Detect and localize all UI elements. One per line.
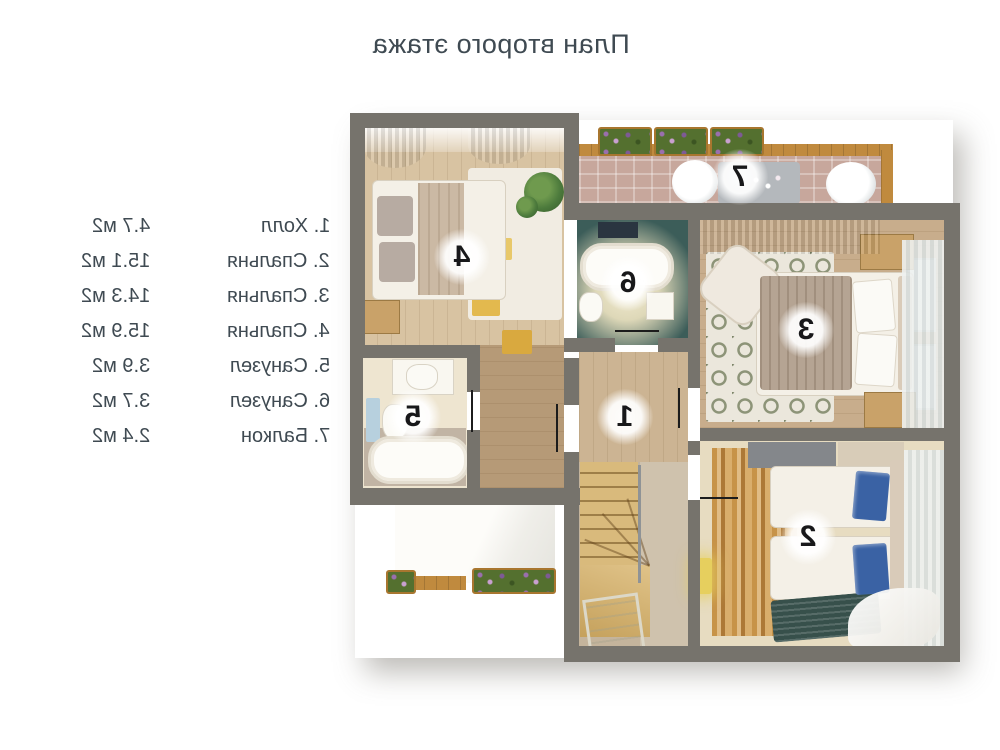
wall: [350, 113, 365, 358]
legend-room-area: 15.9 м2: [81, 320, 150, 343]
legend-room-name: 4. Спальня: [227, 320, 330, 343]
legend-room-name: 1. Холл: [261, 215, 330, 238]
floor-plan-page: План второго этажа 1. Холл 4.7 м2 2. Спа…: [0, 0, 1000, 750]
roof-flowers: [386, 570, 416, 594]
bedroom4-curtain-right: [468, 126, 530, 164]
bathroom6-skylight: [598, 222, 638, 238]
room-badge-balcony: 7: [712, 149, 768, 205]
wall: [467, 358, 480, 392]
door-hall: [556, 404, 558, 452]
bedroom2-blue-pillow: [852, 543, 889, 595]
balcony-chair: [672, 160, 718, 204]
wall: [564, 452, 579, 646]
bathroom5-towel-rack: [366, 398, 380, 442]
legend-room-name: 2. Спальня: [227, 250, 330, 273]
stairs-flight: [580, 462, 638, 572]
wall: [350, 488, 580, 505]
bedroom4-curtain-left: [364, 126, 426, 168]
bedroom4-nightstand: [364, 300, 400, 334]
room-badge-bedroom4: 4: [434, 229, 490, 285]
room-badge-hall: 1: [597, 389, 653, 445]
room-badge-bathroom5: 5: [385, 389, 441, 445]
bedroom3-pillow: [854, 333, 898, 388]
rug-patch: [502, 330, 532, 354]
wall: [564, 203, 960, 220]
bedroom3-pillow: [852, 278, 896, 333]
wall: [688, 500, 700, 662]
legend-room-area: 2.4 м2: [92, 425, 150, 448]
corridor-floor: [480, 345, 564, 488]
legend-room-area: 15.1 м2: [81, 250, 150, 273]
legend-room-area: 3.9 м2: [92, 355, 150, 378]
bedroom3-sheer-curtain: [902, 240, 944, 428]
wall: [564, 358, 579, 405]
bathroom6-toilet: [579, 292, 603, 322]
stair-railing: [638, 465, 641, 583]
wall: [944, 203, 960, 662]
door-bathroom6: [615, 330, 659, 332]
wall: [467, 430, 480, 488]
balcony-railing-right: [881, 150, 893, 203]
legend-room-name: 5. Санузел: [230, 355, 330, 378]
bedroom4-pillow: [377, 196, 413, 236]
balcony-chair: [826, 162, 876, 206]
door-bathroom5: [471, 390, 473, 432]
legend-room-area: 4.7 м2: [92, 215, 150, 238]
flower-box: [654, 127, 708, 156]
wall: [688, 220, 700, 388]
bathroom5-basin: [406, 364, 438, 390]
bedroom4-pillow: [379, 242, 415, 282]
legend-room-name: 6. Санузел: [230, 390, 330, 413]
room-badge-bedroom3: 3: [778, 302, 834, 358]
page-title: План второго этажа: [340, 28, 662, 60]
bedroom2-wardrobe: [748, 442, 836, 468]
wall: [688, 441, 700, 455]
legend-room-name: 7. Балкон: [241, 425, 330, 448]
legend-room-area: 14.3 м2: [81, 285, 150, 308]
room-badge-bathroom6: 6: [600, 255, 656, 311]
legend-room-area: 3.7 м2: [92, 390, 150, 413]
plant: [516, 196, 538, 218]
room-badge-bedroom2: 2: [780, 509, 836, 565]
wall: [658, 338, 700, 352]
wall: [564, 646, 960, 662]
wall: [564, 338, 615, 352]
legend-room-name: 3. Спальня: [227, 285, 330, 308]
door-bedroom3: [678, 388, 680, 428]
wall: [350, 345, 363, 501]
door-bedroom2: [700, 497, 738, 499]
wall: [350, 113, 579, 128]
roof-flowers: [472, 568, 556, 594]
flower-box: [598, 127, 652, 156]
bedroom2-blue-pillow: [852, 471, 890, 522]
wall: [700, 428, 944, 441]
wall: [350, 345, 480, 358]
